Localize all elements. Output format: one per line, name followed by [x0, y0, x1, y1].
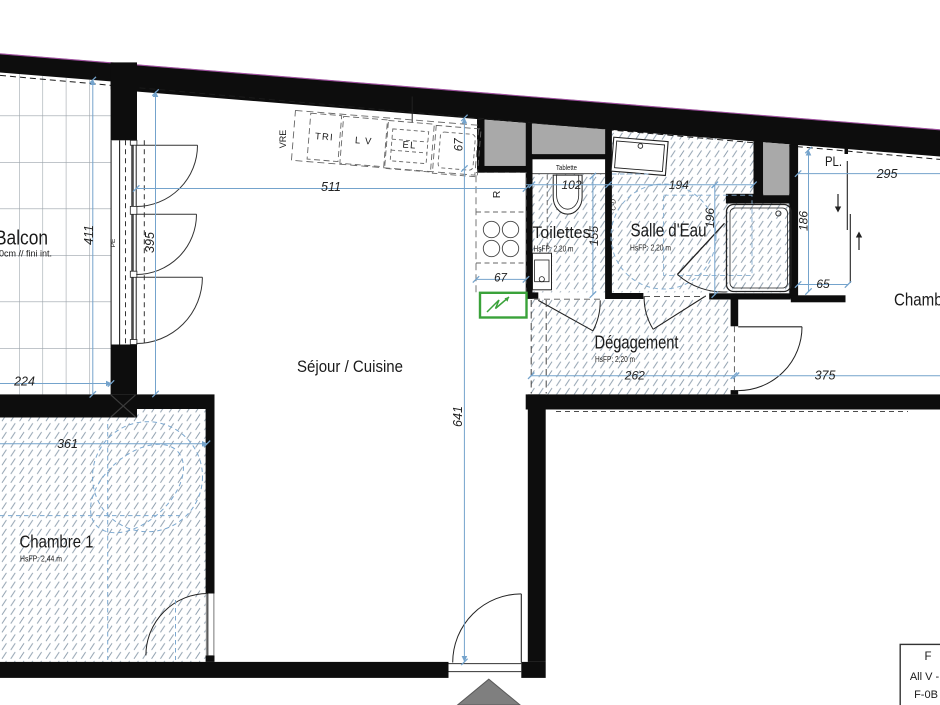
svg-text:C-D: C-D: [610, 199, 617, 211]
svg-text:641: 641: [451, 406, 465, 427]
svg-text:102: 102: [561, 178, 581, 192]
svg-text:Balcon: Balcon: [0, 227, 48, 249]
svg-text:Salle d'Eau: Salle d'Eau: [631, 221, 707, 241]
svg-text:All V - N: All V - N: [910, 671, 940, 683]
svg-text:F-0B: F-0B: [914, 689, 938, 701]
svg-text:67: 67: [494, 273, 507, 285]
svg-text:HsFP: 2,20 m: HsFP: 2,20 m: [595, 355, 635, 364]
svg-text:411: 411: [82, 225, 96, 245]
svg-text:0cm // fini int.: 0cm // fini int.: [0, 249, 52, 259]
svg-text:L V: L V: [355, 135, 373, 147]
svg-text:PL.: PL.: [825, 153, 842, 169]
svg-text:EL: EL: [402, 140, 417, 152]
svg-text:Séjour / Cuisine: Séjour / Cuisine: [297, 357, 403, 376]
svg-text:395: 395: [143, 232, 157, 253]
svg-text:224: 224: [13, 374, 35, 388]
svg-text:Toilettes: Toilettes: [533, 223, 591, 242]
svg-text:Chambre: Chambre: [894, 290, 940, 310]
svg-text:Chambre 1: Chambre 1: [20, 532, 94, 552]
svg-text:375: 375: [815, 369, 836, 383]
svg-text:67: 67: [454, 138, 466, 151]
svg-text:VRE: VRE: [278, 130, 288, 149]
svg-text:Dégagement: Dégagement: [595, 331, 679, 352]
svg-text:HsFP: 2,20 m: HsFP: 2,20 m: [630, 244, 671, 253]
svg-text:PE: PE: [110, 238, 117, 247]
svg-text:262: 262: [624, 369, 645, 383]
svg-text:HsFP: 2,20 m: HsFP: 2,20 m: [534, 245, 574, 254]
svg-text:186: 186: [797, 211, 811, 231]
svg-text:295: 295: [876, 167, 898, 181]
svg-text:TRI: TRI: [315, 131, 335, 143]
svg-text:511: 511: [321, 180, 341, 194]
svg-text:194: 194: [669, 178, 689, 192]
svg-text:R: R: [491, 190, 503, 198]
svg-text:Tablette: Tablette: [556, 165, 577, 172]
svg-text:65: 65: [816, 277, 830, 291]
svg-text:F: F: [924, 651, 931, 663]
svg-text:361: 361: [57, 437, 78, 451]
svg-text:HsFP: 2,44 m: HsFP: 2,44 m: [20, 554, 62, 564]
